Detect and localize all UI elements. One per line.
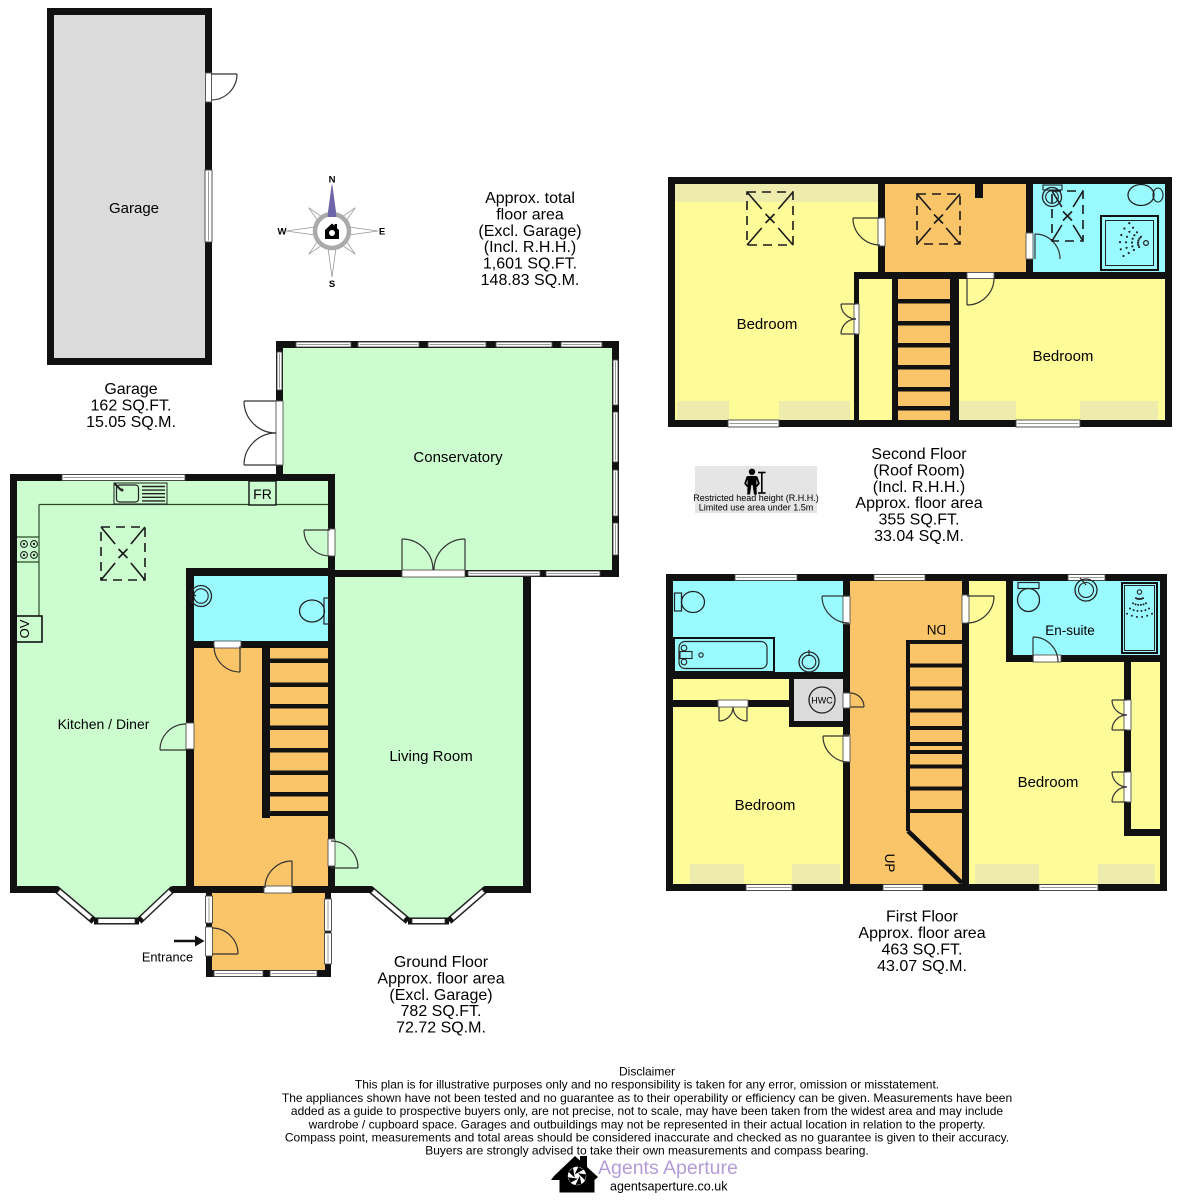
svg-text:UP: UP (882, 854, 897, 873)
svg-text:W: W (278, 227, 287, 238)
svg-text:Restricted head height (R.H.H.: Restricted head height (R.H.H.) (693, 493, 819, 503)
svg-text:463 SQ.FT.: 463 SQ.FT. (882, 941, 963, 958)
svg-text:En-suite: En-suite (1045, 623, 1095, 638)
svg-text:Bedroom: Bedroom (737, 316, 798, 333)
svg-text:355 SQ.FT.: 355 SQ.FT. (879, 512, 960, 529)
svg-text:Approx. floor area: Approx. floor area (377, 970, 504, 987)
svg-text:agentsaperture.co.uk: agentsaperture.co.uk (610, 1180, 728, 1194)
svg-text:E: E (379, 227, 385, 238)
svg-text:Disclaimer: Disclaimer (619, 1065, 675, 1079)
svg-text:148.83 SQ.M.: 148.83 SQ.M. (481, 272, 580, 289)
svg-text:Agents Aperture: Agents Aperture (598, 1157, 738, 1179)
svg-text:Conservatory: Conservatory (413, 449, 503, 466)
svg-text:Limited use area under 1.5m: Limited use area under 1.5m (699, 503, 814, 513)
svg-text:OV: OV (17, 619, 32, 638)
svg-text:wardrobe / cupboard space. Gar: wardrobe / cupboard space. Garages and o… (308, 1117, 986, 1131)
svg-text:Garage: Garage (104, 381, 157, 398)
svg-text:Bedroom: Bedroom (1033, 348, 1094, 365)
svg-text:Approx. floor area: Approx. floor area (855, 495, 982, 512)
svg-text:43.07 SQ.M.: 43.07 SQ.M. (877, 958, 967, 975)
svg-text:(Incl. R.H.H.): (Incl. R.H.H.) (484, 239, 576, 256)
svg-text:Ground Floor: Ground Floor (394, 954, 489, 971)
svg-text:FR: FR (253, 486, 272, 502)
svg-text:HWC: HWC (811, 696, 833, 706)
svg-text:added as a guide to prospectiv: added as a guide to prospective buyers o… (291, 1104, 1004, 1118)
svg-text:Living Room: Living Room (389, 748, 472, 765)
svg-text:Bedroom: Bedroom (1018, 774, 1079, 791)
svg-text:(Incl. R.H.H.): (Incl. R.H.H.) (873, 479, 965, 496)
svg-text:(Excl. Garage): (Excl. Garage) (389, 987, 492, 1004)
svg-text:Approx. total: Approx. total (485, 190, 575, 207)
svg-text:Approx. floor area: Approx. floor area (858, 925, 985, 942)
svg-text:15.05 SQ.M.: 15.05 SQ.M. (86, 414, 176, 431)
svg-text:S: S (329, 279, 335, 290)
svg-text:72.72 SQ.M.: 72.72 SQ.M. (396, 1020, 486, 1037)
svg-text:First Floor: First Floor (886, 909, 959, 926)
svg-text:The appliances shown have not: The appliances shown have not been teste… (282, 1091, 1012, 1105)
svg-text:DN: DN (927, 622, 947, 637)
svg-text:Bedroom: Bedroom (735, 797, 796, 814)
svg-text:This plan is for illustrative: This plan is for illustrative purposes o… (355, 1078, 939, 1092)
svg-text:N: N (329, 175, 336, 186)
svg-text:Compass point, measurements an: Compass point, measurements and total ar… (285, 1131, 1009, 1145)
svg-text:1,601 SQ.FT.: 1,601 SQ.FT. (483, 256, 577, 273)
svg-text:Buyers are strongly advised to: Buyers are strongly advised to take thei… (425, 1144, 869, 1158)
svg-text:Entrance: Entrance (142, 950, 193, 965)
svg-text:Second Floor: Second Floor (871, 446, 967, 463)
svg-text:782 SQ.FT.: 782 SQ.FT. (401, 1003, 482, 1020)
svg-text:floor area: floor area (496, 206, 564, 223)
svg-text:33.04 SQ.M.: 33.04 SQ.M. (874, 528, 964, 545)
svg-text:(Excl. Garage): (Excl. Garage) (478, 223, 581, 240)
svg-text:(Roof Room): (Roof Room) (873, 462, 965, 479)
svg-text:162 SQ.FT.: 162 SQ.FT. (91, 397, 172, 414)
svg-text:Garage: Garage (109, 200, 159, 217)
svg-text:Kitchen / Diner: Kitchen / Diner (58, 716, 150, 732)
